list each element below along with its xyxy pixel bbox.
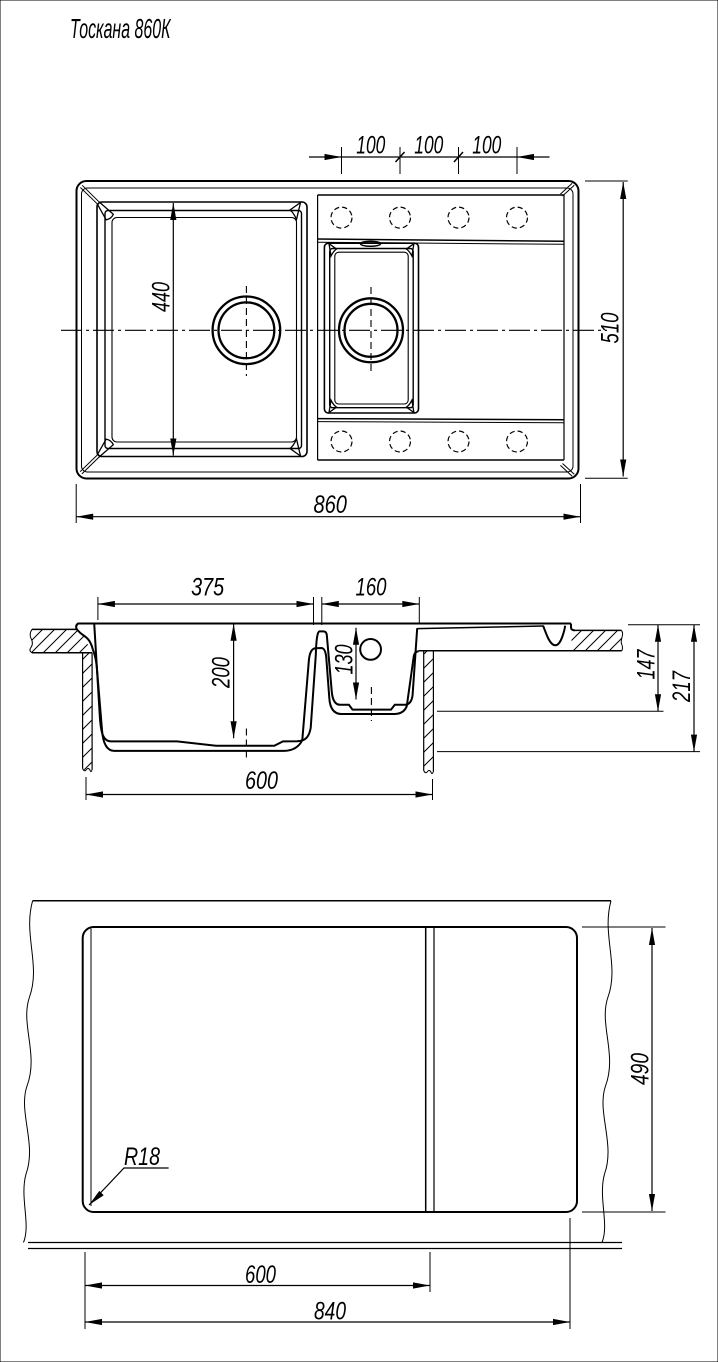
- svg-text:840: 840: [314, 1297, 346, 1325]
- svg-text:600: 600: [245, 767, 278, 795]
- svg-text:200: 200: [208, 657, 236, 689]
- svg-text:600: 600: [245, 1261, 276, 1289]
- svg-text:160: 160: [356, 574, 387, 602]
- svg-text:100: 100: [356, 131, 385, 159]
- svg-text:860: 860: [313, 491, 347, 519]
- svg-text:440: 440: [148, 282, 176, 312]
- svg-text:147: 147: [633, 649, 661, 680]
- svg-text:Тоскана 860К: Тоскана 860К: [70, 13, 172, 44]
- svg-text:217: 217: [668, 670, 696, 703]
- svg-text:100: 100: [414, 131, 443, 159]
- svg-text:100: 100: [472, 131, 501, 159]
- svg-text:R18: R18: [124, 1143, 160, 1171]
- svg-text:130: 130: [331, 644, 359, 674]
- svg-text:510: 510: [597, 312, 625, 343]
- svg-text:490: 490: [627, 1053, 655, 1085]
- svg-text:375: 375: [191, 574, 224, 602]
